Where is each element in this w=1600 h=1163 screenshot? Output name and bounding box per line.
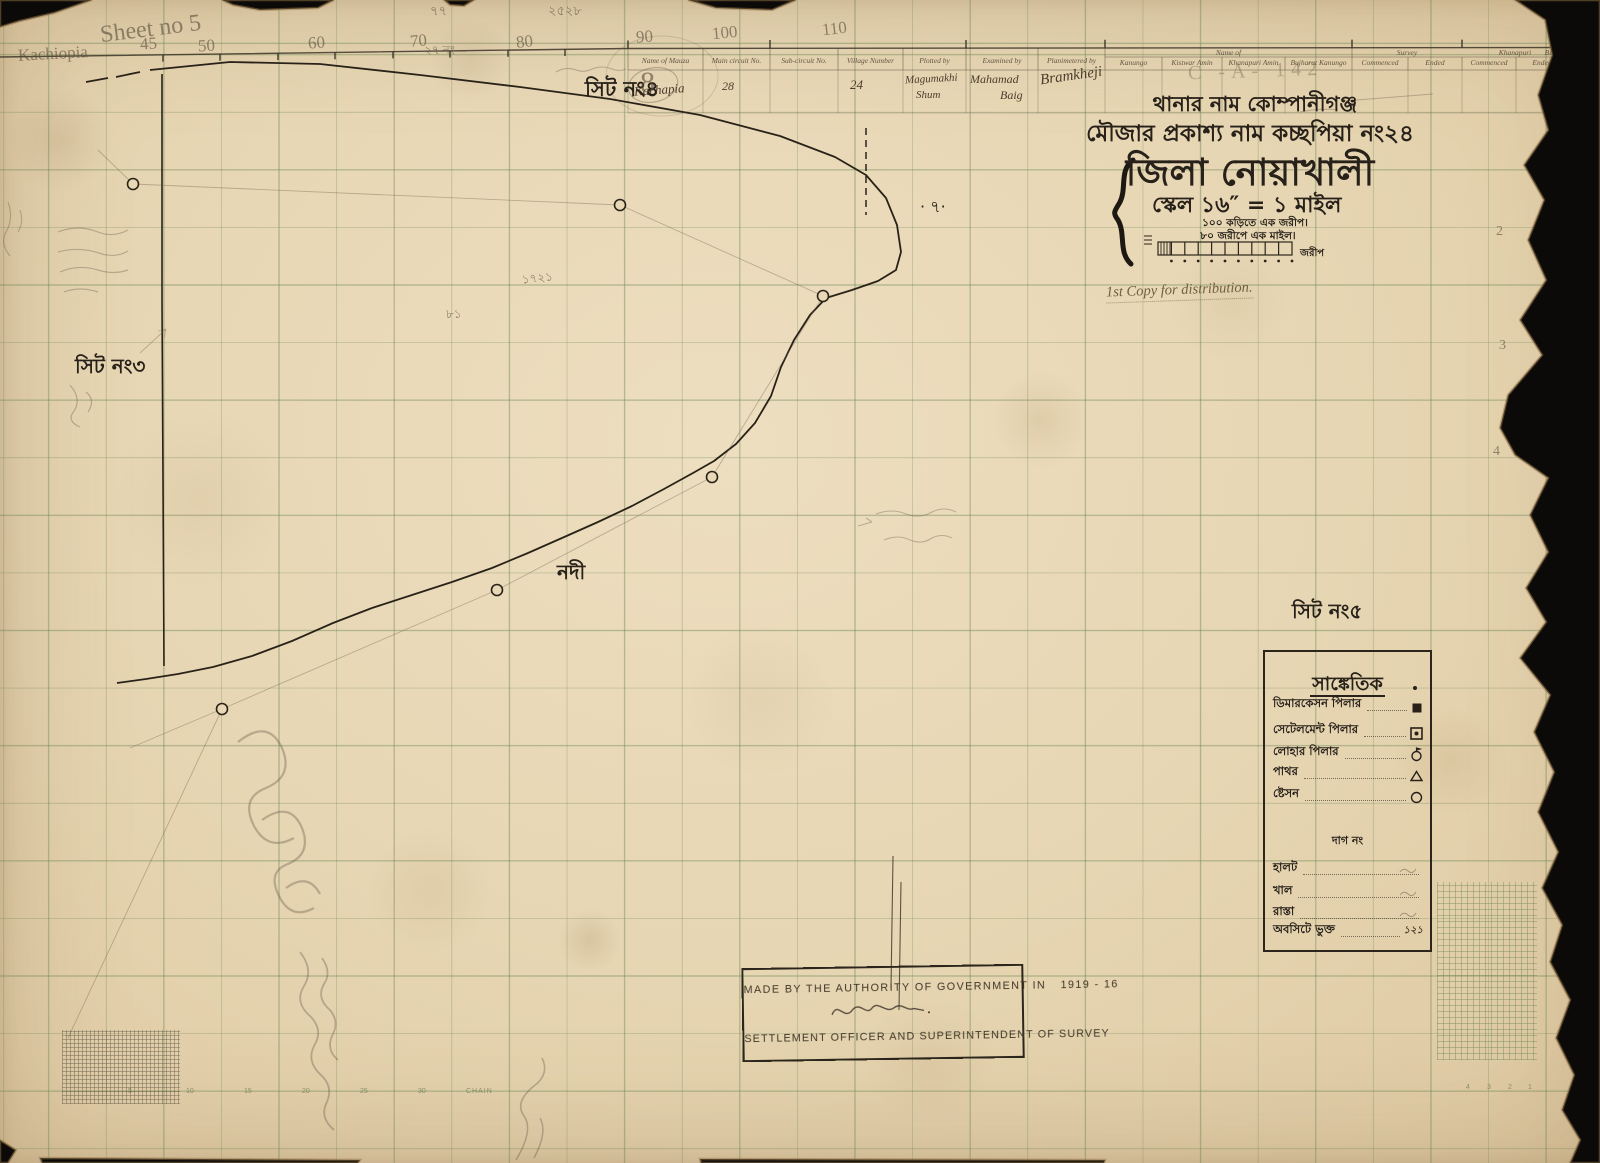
torn-edge-right <box>1500 0 1600 1163</box>
survey-map-sheet: Sheet no 5 Kachiopia 45 50 60 70 80 90 1… <box>0 0 1600 1163</box>
torn-sliver-bottom-1 <box>40 1158 360 1163</box>
torn-paper-edges <box>0 0 1600 1163</box>
torn-sliver-top-3 <box>444 0 474 6</box>
torn-edge-top-left <box>0 0 92 27</box>
torn-sliver-top-1 <box>222 0 334 10</box>
torn-sliver-bottom-2 <box>700 1159 1105 1163</box>
torn-edge-bottom-left <box>0 1140 16 1163</box>
torn-sliver-top-2 <box>688 0 796 10</box>
